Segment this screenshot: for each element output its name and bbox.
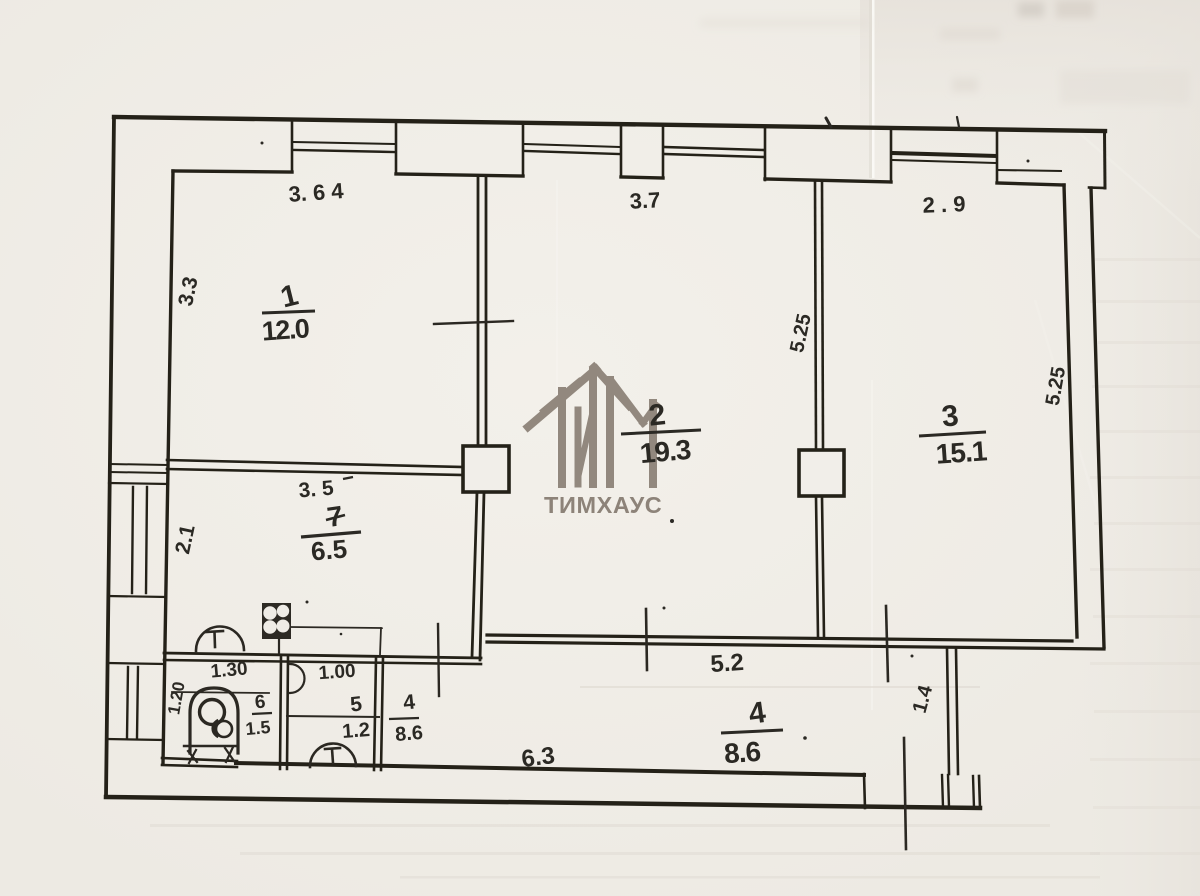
svg-text:2 . 9: 2 . 9 bbox=[922, 191, 966, 217]
svg-text:1.2: 1.2 bbox=[341, 719, 370, 743]
svg-text:3. 6 4: 3. 6 4 bbox=[288, 178, 345, 207]
svg-text:19.3: 19.3 bbox=[639, 434, 692, 469]
svg-text:1.30: 1.30 bbox=[210, 658, 249, 682]
svg-text:8.6: 8.6 bbox=[723, 736, 761, 769]
svg-text:6.5: 6.5 bbox=[310, 533, 349, 566]
svg-text:8.6: 8.6 bbox=[394, 722, 423, 746]
svg-text:1.5: 1.5 bbox=[245, 717, 272, 739]
svg-text:15.1: 15.1 bbox=[935, 435, 988, 469]
svg-text:3.7: 3.7 bbox=[629, 187, 661, 214]
svg-text:5.2: 5.2 bbox=[710, 649, 745, 678]
svg-text:2: 2 bbox=[647, 398, 667, 433]
svg-text:ТИМХАУС: ТИМХАУС bbox=[544, 492, 662, 518]
svg-text:3. 5: 3. 5 bbox=[298, 476, 335, 502]
svg-text:1.00: 1.00 bbox=[318, 661, 356, 685]
svg-text:6: 6 bbox=[254, 691, 267, 713]
svg-text:3: 3 bbox=[940, 399, 960, 434]
svg-text:12.0: 12.0 bbox=[261, 313, 310, 346]
svg-text:6.3: 6.3 bbox=[520, 742, 556, 773]
